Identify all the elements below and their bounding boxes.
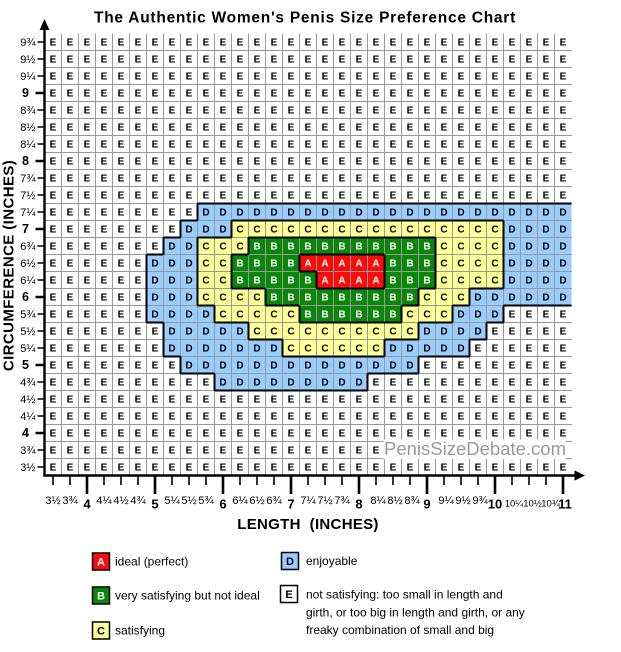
svg-text:6½: 6½ xyxy=(249,495,264,507)
svg-text:8½: 8½ xyxy=(387,495,402,507)
svg-text:8¼: 8¼ xyxy=(20,139,36,151)
svg-text:The Authentic Women's Penis Si: The Authentic Women's Penis Size Prefere… xyxy=(94,10,516,27)
svg-text:C: C xyxy=(97,626,105,638)
svg-text:9½: 9½ xyxy=(455,495,470,507)
svg-text:3½: 3½ xyxy=(20,462,35,474)
svg-text:LENGTH (INCHES): LENGTH (INCHES) xyxy=(237,516,378,533)
svg-text:8¾: 8¾ xyxy=(20,105,36,117)
svg-text:E: E xyxy=(285,589,292,601)
svg-text:4¼: 4¼ xyxy=(20,411,36,423)
svg-text:7¾: 7¾ xyxy=(334,495,350,507)
svg-text:5¾: 5¾ xyxy=(20,309,36,321)
svg-text:3¾: 3¾ xyxy=(20,445,36,457)
svg-text:8: 8 xyxy=(22,154,29,168)
svg-text:7¼: 7¼ xyxy=(20,207,36,219)
svg-text:6¾: 6¾ xyxy=(266,495,282,507)
svg-text:9¾: 9¾ xyxy=(20,37,36,49)
svg-text:satisfying: satisfying xyxy=(115,624,165,638)
svg-text:10¾: 10¾ xyxy=(541,499,561,510)
svg-text:8¼: 8¼ xyxy=(370,495,386,507)
svg-text:5½: 5½ xyxy=(20,326,35,338)
svg-text:11: 11 xyxy=(558,497,572,512)
svg-text:5¼: 5¼ xyxy=(164,495,180,507)
svg-text:9: 9 xyxy=(423,497,430,512)
svg-text:6½: 6½ xyxy=(20,258,35,270)
svg-text:6: 6 xyxy=(22,290,29,304)
svg-text:4¾: 4¾ xyxy=(130,495,146,507)
svg-text:7: 7 xyxy=(22,222,29,236)
svg-text:7½: 7½ xyxy=(20,190,35,202)
svg-text:B: B xyxy=(97,591,105,603)
svg-text:4½: 4½ xyxy=(20,394,35,406)
svg-text:8¾: 8¾ xyxy=(404,495,420,507)
svg-text:girth, or too big in length an: girth, or too big in length and girth, o… xyxy=(306,606,525,620)
svg-text:5¾: 5¾ xyxy=(198,495,214,507)
svg-text:5¼: 5¼ xyxy=(20,343,36,355)
svg-text:9¼: 9¼ xyxy=(438,495,454,507)
svg-text:8: 8 xyxy=(355,497,362,512)
svg-text:3½: 3½ xyxy=(45,495,60,507)
svg-text:7: 7 xyxy=(287,497,294,512)
svg-text:freaky combination of small an: freaky combination of small and big xyxy=(306,623,494,637)
svg-text:6¼: 6¼ xyxy=(20,275,36,287)
svg-text:10¼: 10¼ xyxy=(505,499,525,510)
svg-text:9¾: 9¾ xyxy=(472,495,488,507)
svg-text:9½: 9½ xyxy=(20,54,35,66)
svg-text:10: 10 xyxy=(488,497,502,512)
svg-text:not satisfying: too small in l: not satisfying: too small in length and xyxy=(306,588,503,602)
svg-text:9: 9 xyxy=(22,86,29,100)
svg-text:4: 4 xyxy=(22,426,29,440)
svg-text:CIRCUMFERENCE (INCHES): CIRCUMFERENCE (INCHES) xyxy=(1,160,18,371)
svg-text:6¾: 6¾ xyxy=(20,241,36,253)
svg-text:8½: 8½ xyxy=(20,122,35,134)
svg-text:4¼: 4¼ xyxy=(96,495,112,507)
svg-text:9¼: 9¼ xyxy=(20,71,36,83)
svg-text:A: A xyxy=(97,557,105,569)
svg-text:ideal (perfect): ideal (perfect) xyxy=(115,555,188,569)
svg-text:5: 5 xyxy=(22,358,29,372)
svg-text:very satisfying but not ideal: very satisfying but not ideal xyxy=(115,589,260,603)
svg-text:4¾: 4¾ xyxy=(20,377,36,389)
svg-text:BBBBBBBBB: BBBBBBBBB xyxy=(270,293,413,304)
svg-text:7½: 7½ xyxy=(317,495,332,507)
svg-text:5: 5 xyxy=(151,497,158,512)
svg-text:4½: 4½ xyxy=(113,495,128,507)
svg-text:10½: 10½ xyxy=(523,499,542,510)
svg-text:D: D xyxy=(286,556,294,568)
svg-text:3¾: 3¾ xyxy=(62,495,78,507)
svg-text:4: 4 xyxy=(83,497,91,512)
svg-text:6¼: 6¼ xyxy=(232,495,248,507)
svg-text:5½: 5½ xyxy=(181,495,196,507)
svg-text:enjoyable: enjoyable xyxy=(306,554,358,568)
svg-text:6: 6 xyxy=(219,497,226,512)
svg-text:7¾: 7¾ xyxy=(20,173,36,185)
svg-text:PenisSizeDebate.com: PenisSizeDebate.com xyxy=(384,438,566,459)
svg-text:7¼: 7¼ xyxy=(300,495,316,507)
